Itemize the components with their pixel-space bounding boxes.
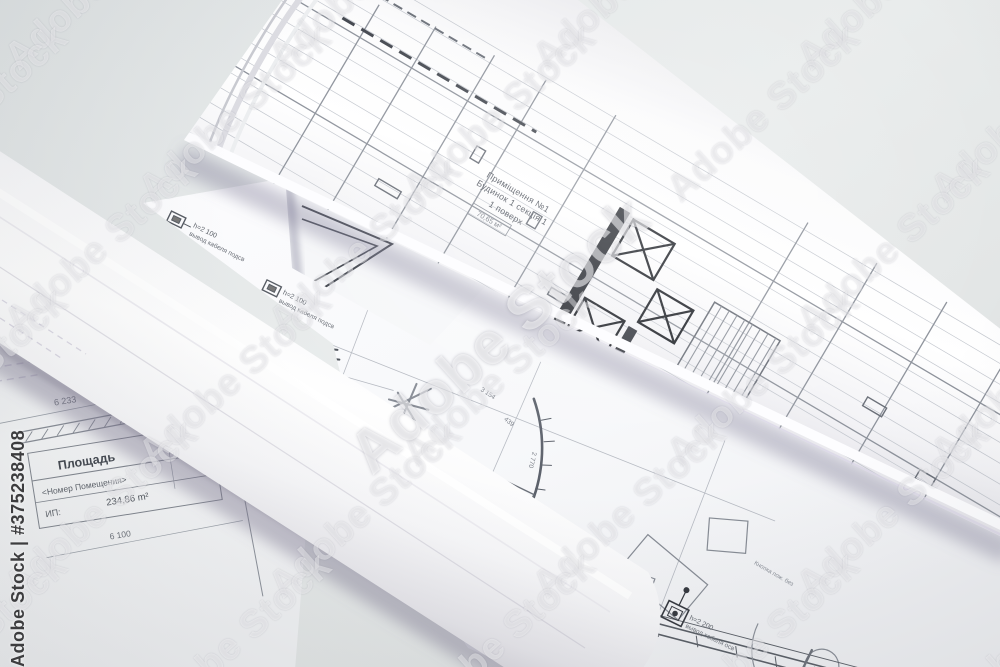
stock-id-label: Adobe Stock | #375238408 xyxy=(8,379,30,667)
blueprint-photo: h=2 100 вывод кабеля подсв h=2 100 вывод… xyxy=(0,0,1000,667)
blueprint-scene: h=2 100 вывод кабеля подсв h=2 100 вывод… xyxy=(0,0,1000,667)
